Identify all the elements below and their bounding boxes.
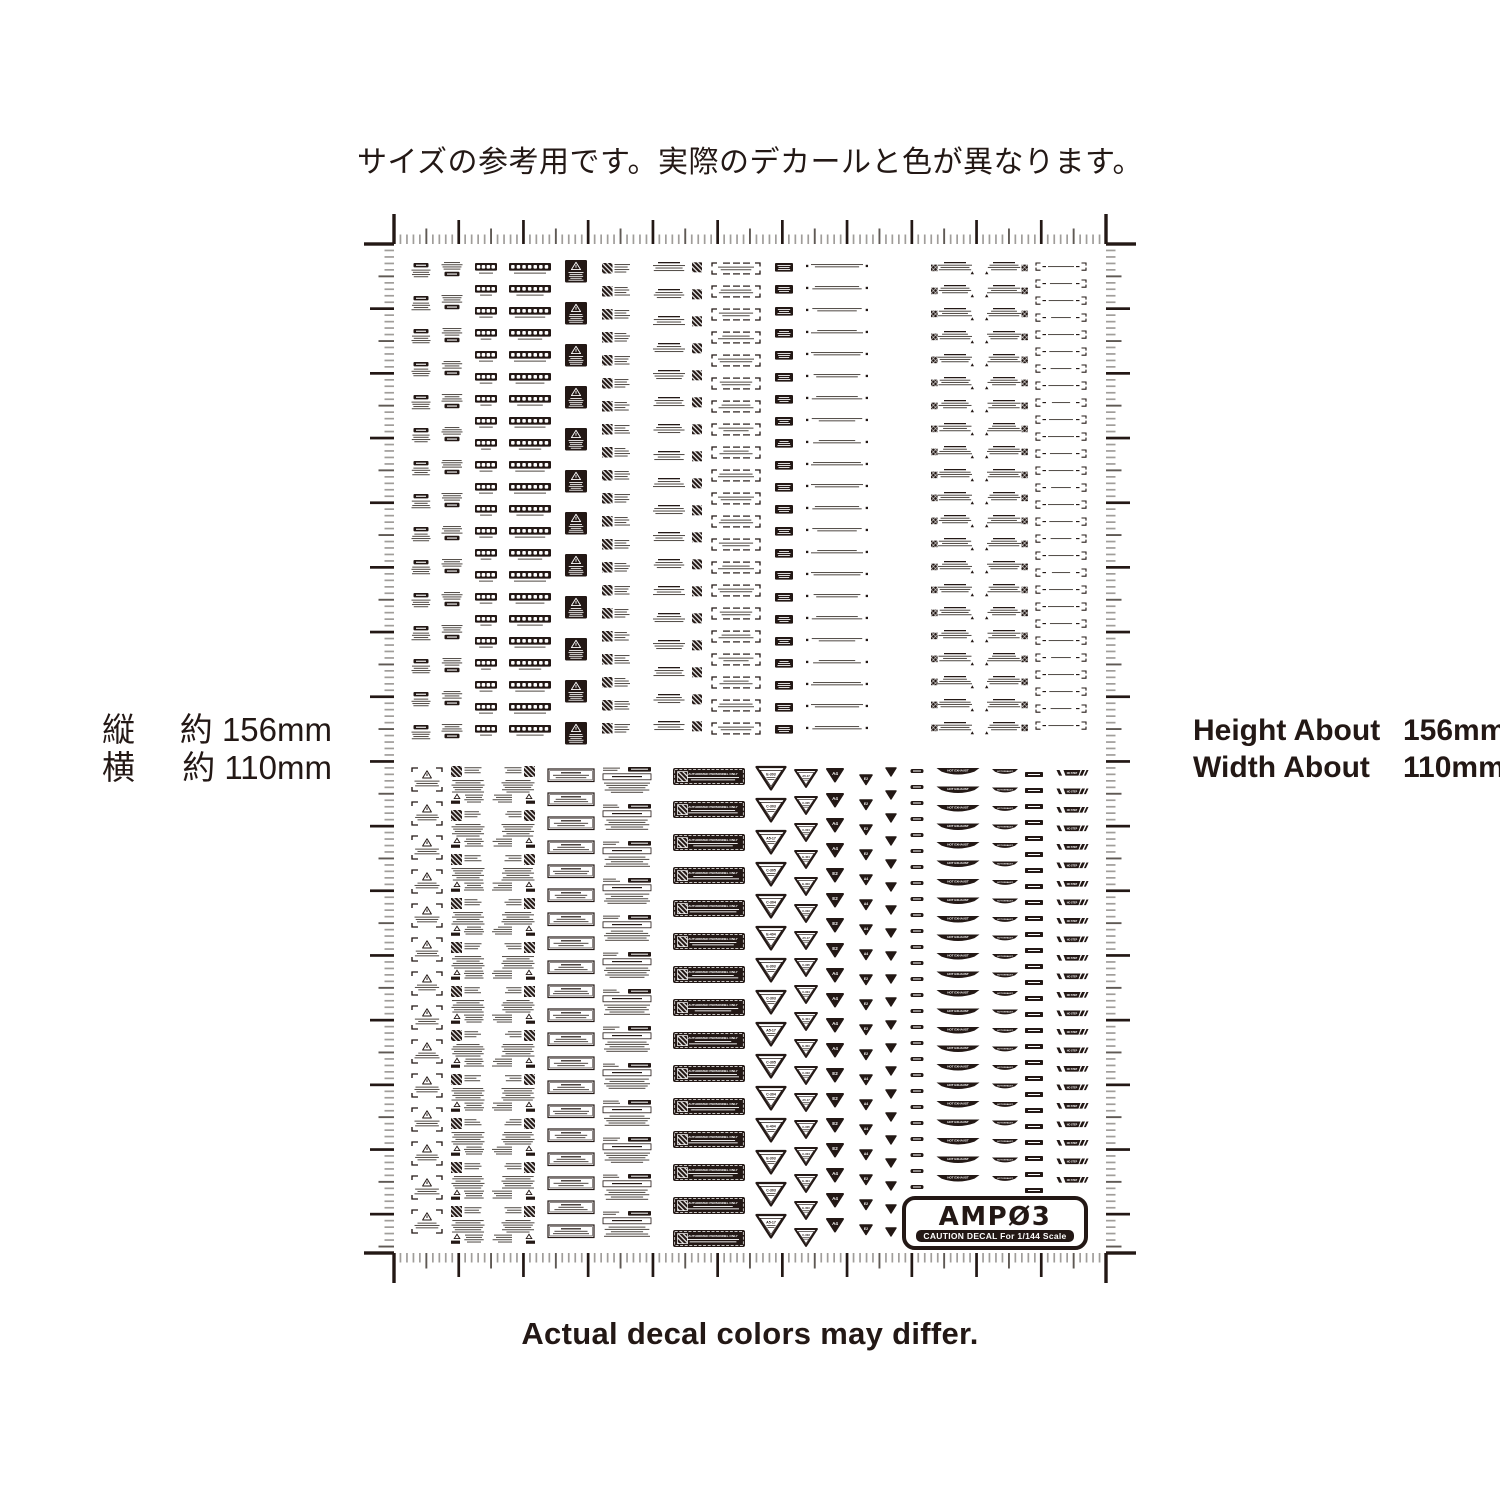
decal-armament-box (548, 889, 594, 902)
decal-armament-right (985, 400, 1028, 412)
decal-warn-square (565, 260, 587, 283)
decal-caution-tag (412, 263, 431, 277)
decal-hot-exhaust-s: HOT EXHAUST (992, 880, 1018, 885)
decal-pill-s (911, 993, 924, 997)
decal-label-rect (1025, 1124, 1043, 1129)
decal-dotted-line (806, 440, 868, 443)
decal-tri-label-l: C-303 (757, 1183, 786, 1206)
decal-text-stripe (653, 262, 702, 272)
decal-stripe-text (602, 516, 630, 527)
decal-chain-s (475, 615, 497, 626)
decal-chain-l (509, 373, 551, 384)
decal-armament-box (548, 913, 594, 926)
decal-text-pill (442, 559, 463, 573)
decal-text-pill (442, 460, 463, 474)
decal-text-stripe (653, 397, 702, 407)
decal-tri-plain (886, 814, 896, 822)
decal-pill-s (911, 1073, 924, 1077)
decal-bracket-box (712, 378, 760, 390)
decal-tri-plain (886, 1159, 896, 1167)
decal-stripe-text (602, 608, 630, 619)
svg-text:A4: A4 (864, 1127, 868, 1131)
decal-hot-exhaust-l: HOT EXHAUST (937, 972, 980, 979)
decal-caution-tag (412, 593, 431, 607)
svg-text:E2: E2 (864, 977, 868, 981)
decal-tri-label-s: A5-17 (795, 932, 817, 949)
decal-tri-label-s: C-304 (795, 986, 817, 1003)
decal-no-step: NO STEP (1057, 1066, 1089, 1072)
decal-hot-exhaust-s: HOT EXHAUST (992, 991, 1018, 996)
svg-text:E-303: E-303 (802, 1206, 810, 1210)
decal-tri-plain (886, 952, 896, 960)
svg-text:NO STEP: NO STEP (1067, 1049, 1078, 1052)
decal-armament-box (548, 1057, 594, 1070)
decal-armament-left (931, 561, 974, 573)
svg-text:A4: A4 (864, 1077, 868, 1081)
decal-tri-solid-s: A4 (860, 900, 872, 910)
svg-text:NO STEP: NO STEP (1067, 938, 1078, 941)
decal-pill-s (911, 865, 924, 869)
decal-chain-s (475, 307, 497, 318)
svg-text:NO STEP: NO STEP (1067, 827, 1078, 830)
decal-armament-box (548, 1033, 594, 1046)
decal-mini-black-box (775, 527, 793, 536)
decal-armament-box (548, 865, 594, 878)
decal-thin-bracket (1036, 586, 1086, 593)
decal-caution-tag (412, 461, 430, 475)
decal-dotted-line (806, 726, 868, 729)
decal-authorized-bar: AUTHORIZED PERSONNEL ONLY (673, 1098, 745, 1115)
svg-text:NO STEP: NO STEP (1067, 957, 1078, 960)
decal-no-step: NO STEP (1057, 1011, 1089, 1017)
decal-armament-left (931, 262, 974, 274)
decal-thin-bracket (1036, 450, 1086, 457)
svg-text:HOT EXHAUST: HOT EXHAUST (997, 936, 1013, 939)
decal-chain-s (475, 395, 497, 406)
svg-text:HOT EXHAUST: HOT EXHAUST (997, 1158, 1013, 1161)
en-width-label: Width About (1193, 749, 1403, 786)
decal-pill-s (911, 881, 924, 885)
decal-no-step: NO STEP (1057, 1029, 1089, 1035)
decal-armament-box (548, 1129, 594, 1142)
decal-chain-s (475, 593, 497, 604)
decal-dotted-line (806, 418, 868, 421)
decal-hot-exhaust-l: HOT EXHAUST (937, 842, 980, 849)
decal-tri-solid-l: A4 (827, 1219, 843, 1232)
decal-bracket-box (712, 355, 760, 367)
svg-text:HOT EXHAUST: HOT EXHAUST (947, 935, 969, 939)
decal-tri-bracket (412, 836, 442, 859)
decal-no-step: NO STEP (1057, 1103, 1089, 1109)
decal-thin-bracket (1036, 484, 1086, 491)
decal-dotted-line (806, 704, 868, 707)
decal-armament-right (985, 676, 1028, 688)
decal-armament-box (548, 1225, 594, 1238)
decal-chain-s (475, 263, 497, 274)
decal-label-rect (1025, 1028, 1043, 1033)
svg-text:A4: A4 (864, 902, 868, 906)
svg-text:E-303: E-303 (766, 773, 776, 777)
svg-text:HOT EXHAUST: HOT EXHAUST (947, 879, 969, 883)
decal-armament-box (548, 769, 594, 782)
decal-caution-tag (412, 527, 431, 541)
svg-text:HOT EXHAUST: HOT EXHAUST (947, 1157, 969, 1161)
svg-text:AUTHORIZED PERSONNEL ONLY: AUTHORIZED PERSONNEL ONLY (688, 1003, 738, 1007)
decal-mini-black-box (775, 505, 793, 514)
decal-authorized-bar: AUTHORIZED PERSONNEL ONLY (673, 1131, 745, 1148)
decal-bracket-box (712, 516, 760, 528)
decal-armament-right (985, 446, 1028, 458)
decal-pill-s (911, 961, 924, 965)
svg-text:NO STEP: NO STEP (1067, 1123, 1078, 1126)
decal-dotted-line (806, 528, 868, 531)
decal-tri-bracket (412, 1210, 442, 1233)
decal-hot-exhaust-l: HOT EXHAUST (937, 768, 980, 775)
svg-text:HOT EXHAUST: HOT EXHAUST (997, 1177, 1013, 1180)
decal-armament-box (548, 1081, 594, 1094)
svg-text:C-304: C-304 (802, 1152, 810, 1156)
decal-tri-bracket (412, 1108, 442, 1131)
decal-bracket-box (712, 700, 760, 712)
decal-tri-solid-s: A4 (860, 1150, 872, 1160)
decal-tri-plain (886, 929, 896, 937)
svg-text:NO STEP: NO STEP (1067, 883, 1078, 886)
decal-no-step: NO STEP (1057, 1085, 1089, 1091)
decal-pill-s (911, 897, 924, 901)
svg-text:A4: A4 (864, 1152, 868, 1156)
decal-caution-tag (412, 692, 431, 706)
decal-tri-plain (886, 1067, 896, 1075)
decal-bracket-box (712, 562, 760, 574)
decal-stripe-col-r (492, 1162, 535, 1200)
decal-authorized-bar: AUTHORIZED PERSONNEL ONLY (673, 1065, 745, 1082)
svg-text:HOT EXHAUST: HOT EXHAUST (947, 898, 969, 902)
svg-text:NO STEP: NO STEP (1067, 1086, 1078, 1089)
decal-hot-exhaust-s: HOT EXHAUST (992, 1010, 1018, 1015)
decal-armament-right (985, 607, 1028, 619)
decal-label-rect (1025, 1012, 1043, 1017)
svg-text:C-305: C-305 (802, 801, 810, 805)
decal-label-rect (1025, 1044, 1043, 1049)
decal-thin-bracket (1036, 722, 1086, 729)
jp-width-row: 横 約 110mm (102, 749, 332, 787)
svg-text:A4: A4 (864, 952, 868, 956)
decal-tri-bracket (412, 904, 442, 927)
decal-dotted-line (806, 682, 868, 685)
decal-dotted-line (806, 484, 868, 487)
decal-thin-bracket (1036, 348, 1086, 355)
decal-stripe-text (602, 424, 630, 435)
svg-text:NO STEP: NO STEP (1067, 1105, 1078, 1108)
svg-text:AUTHORIZED PERSONNEL ONLY: AUTHORIZED PERSONNEL ONLY (688, 838, 738, 842)
decal-tri-solid-s: E2 (860, 800, 872, 810)
decal-stripe-col-r (493, 766, 535, 804)
decal-service-text (603, 804, 651, 830)
decal-armament-left (931, 653, 974, 665)
decal-tri-solid-l: E2 (827, 1094, 843, 1107)
decal-armament-right (985, 469, 1028, 481)
decal-mini-black-box (775, 549, 793, 558)
svg-text:NO STEP: NO STEP (1067, 994, 1078, 997)
decal-tri-bracket (412, 1040, 442, 1063)
decal-no-step: NO STEP (1057, 807, 1089, 813)
decal-text-pill (442, 328, 462, 342)
svg-text:NO STEP: NO STEP (1067, 772, 1078, 775)
decal-armament-left (931, 377, 974, 389)
decal-stripe-text (602, 332, 630, 343)
decal-bracket-box (712, 424, 760, 436)
decal-tri-solid-s: E2 (860, 1050, 872, 1060)
decal-pill-s (911, 1057, 924, 1061)
decal-text-pill (442, 658, 462, 672)
svg-text:HOT EXHAUST: HOT EXHAUST (997, 918, 1013, 921)
svg-text:E-303: E-303 (766, 965, 776, 969)
decal-chain-l (509, 285, 551, 296)
decal-mini-black-box (775, 659, 793, 668)
decal-label-rect (1025, 788, 1043, 793)
decal-armament-left (931, 285, 974, 297)
decal-thin-bracket (1036, 654, 1086, 661)
decal-mini-black-box (775, 307, 793, 316)
decal-tri-plain (886, 1113, 896, 1121)
decal-text-stripe (653, 667, 702, 677)
decal-stripe-col (451, 1118, 485, 1156)
decal-tri-solid-s: E2 (860, 825, 872, 835)
decal-chain-l (509, 439, 551, 450)
decal-authorized-bar: AUTHORIZED PERSONNEL ONLY (673, 1164, 745, 1181)
decal-tri-plain (886, 1090, 896, 1098)
decal-tri-label-s: C-303 (795, 905, 817, 922)
decal-label-rect (1025, 1076, 1043, 1081)
decal-pill-s (911, 945, 924, 949)
decal-pill-s (911, 1121, 924, 1125)
decal-armament-right (985, 653, 1028, 665)
decal-label-rect (1025, 804, 1043, 809)
decal-stripe-col (451, 986, 485, 1024)
decal-stripe-text (602, 378, 630, 389)
decal-chain-l (509, 351, 551, 362)
decal-tri-solid-s: E2 (860, 1025, 872, 1035)
decal-mini-black-box (775, 637, 793, 646)
decal-tri-solid-s: A4 (860, 1100, 872, 1110)
svg-text:E-404: E-404 (802, 1017, 810, 1021)
svg-text:E2: E2 (864, 1027, 868, 1031)
jp-width-value: 約 110mm (182, 749, 332, 787)
decal-stripe-col (451, 1206, 485, 1244)
decal-stripe-col-r (492, 898, 535, 936)
svg-text:E2: E2 (864, 1002, 868, 1006)
decal-text-pill (442, 691, 462, 705)
decal-caution-tag (412, 560, 431, 574)
decal-tri-label-s: C-305 (795, 797, 817, 814)
decal-tri-label-l: C-305 (757, 1055, 786, 1078)
decal-caution-tag (412, 329, 431, 343)
decal-hot-exhaust-l: HOT EXHAUST (937, 1157, 980, 1164)
decal-hot-exhaust-s: HOT EXHAUST (992, 788, 1018, 793)
jp-height-label: 縦 (102, 711, 135, 749)
decal-stripe-text (602, 631, 630, 642)
decal-tri-label-s: C-305 (795, 1121, 817, 1138)
decal-label-rect (1025, 1140, 1043, 1145)
decal-stripe-col-r (492, 942, 535, 980)
decal-thin-bracket (1036, 297, 1086, 304)
decal-hot-exhaust-s: HOT EXHAUST (992, 1065, 1018, 1070)
decal-stripe-text (602, 654, 630, 665)
decal-tri-label-l: C-303 (757, 799, 786, 822)
decal-text-pill (442, 526, 463, 540)
decal-service-text (603, 1174, 651, 1200)
decal-tri-solid-l: A4 (827, 969, 843, 982)
decal-thin-bracket (1036, 382, 1086, 389)
decal-tri-label-s: C-303 (795, 1067, 817, 1084)
svg-text:E-303: E-303 (802, 882, 810, 886)
svg-text:C-303: C-303 (802, 1233, 810, 1237)
decal-pill-s (911, 1025, 924, 1029)
decal-tri-label-l: C-305 (757, 863, 786, 886)
decal-armament-box (548, 961, 594, 974)
decal-bracket-box (712, 631, 760, 643)
svg-text:NO STEP: NO STEP (1067, 920, 1078, 923)
decal-stripe-text (602, 401, 630, 412)
decal-dotted-line (806, 506, 868, 509)
decal-warn-square (565, 428, 587, 451)
decal-thin-bracket (1036, 433, 1086, 440)
svg-text:E2: E2 (864, 1177, 868, 1181)
decal-armament-left (931, 354, 974, 366)
decal-label-rect (1025, 852, 1043, 857)
decal-service-text (603, 1211, 651, 1237)
decal-tri-bracket (412, 870, 442, 893)
svg-text:A4: A4 (864, 1102, 868, 1106)
decal-armament-left (931, 400, 974, 412)
decal-authorized-bar: AUTHORIZED PERSONNEL ONLY (673, 999, 745, 1016)
decal-armament-box (548, 1201, 594, 1214)
decal-stripe-col-r (493, 810, 535, 848)
decal-tri-solid-s: E2 (860, 775, 872, 785)
decal-authorized-bar: AUTHORIZED PERSONNEL ONLY (673, 834, 745, 851)
svg-text:E2: E2 (832, 896, 838, 901)
decal-caution-tag (412, 626, 431, 640)
decal-bracket-box (712, 585, 760, 597)
decal-tri-label-s: C-304 (795, 1148, 817, 1165)
svg-text:HOT EXHAUST: HOT EXHAUST (947, 1175, 969, 1179)
decal-mini-black-box (775, 461, 793, 470)
decal-tri-label-l: A5-17 (757, 1215, 786, 1238)
svg-text:C-305: C-305 (766, 869, 776, 873)
decal-armament-box (548, 793, 594, 806)
bottom-caption: Actual decal colors may differ. (0, 1316, 1500, 1352)
decal-hot-exhaust-l: HOT EXHAUST (937, 1138, 980, 1145)
decal-tri-solid-l: E2 (827, 1119, 843, 1132)
svg-text:A4: A4 (832, 1046, 838, 1051)
decal-no-step: NO STEP (1057, 789, 1089, 795)
svg-text:NO STEP: NO STEP (1067, 1012, 1078, 1015)
decal-tri-label-l: A5-17 (757, 831, 786, 854)
decal-label-rect (1025, 1108, 1043, 1113)
svg-text:HOT EXHAUST: HOT EXHAUST (947, 824, 969, 828)
decal-tri-label-l: E-404 (757, 1119, 786, 1142)
decal-service-text (603, 952, 651, 978)
decal-no-step: NO STEP (1057, 918, 1089, 924)
decal-stripe-col (451, 1162, 485, 1200)
svg-text:C-304: C-304 (766, 901, 776, 905)
decal-tri-label-s: A5-17 (795, 1094, 817, 1111)
decal-text-stripe (653, 451, 702, 461)
jp-height-value: 約 156mm (180, 711, 332, 749)
decal-hot-exhaust-l: HOT EXHAUST (937, 805, 980, 812)
decal-bracket-box (712, 309, 760, 321)
svg-text:C-305: C-305 (802, 963, 810, 967)
svg-text:HOT EXHAUST: HOT EXHAUST (997, 992, 1013, 995)
decal-dotted-line (806, 616, 868, 619)
svg-text:HOT EXHAUST: HOT EXHAUST (947, 953, 969, 957)
svg-text:A4: A4 (864, 927, 868, 931)
decal-label-rect (1025, 868, 1043, 873)
svg-text:HOT EXHAUST: HOT EXHAUST (947, 1138, 969, 1142)
svg-text:A4: A4 (832, 796, 838, 801)
decal-label-rect (1025, 884, 1043, 889)
decal-mini-black-box (775, 373, 793, 382)
svg-text:AUTHORIZED PERSONNEL ONLY: AUTHORIZED PERSONNEL ONLY (688, 1069, 738, 1073)
decal-chain-s (475, 549, 497, 560)
svg-text:NO STEP: NO STEP (1067, 846, 1078, 849)
decal-stripe-text (602, 447, 630, 458)
decal-hot-exhaust-s: HOT EXHAUST (992, 1084, 1018, 1089)
decal-mini-black-box (775, 329, 793, 338)
decal-chain-s (475, 527, 497, 538)
size-label-jp: 縦 約 156mm 横 約 110mm (102, 711, 332, 787)
svg-text:NO STEP: NO STEP (1067, 1179, 1078, 1182)
decal-chain-l (509, 615, 551, 626)
svg-text:A5-17: A5-17 (766, 1029, 776, 1033)
decal-stripe-col (451, 898, 485, 936)
decal-bracket-box (712, 654, 760, 666)
decal-stripe-text (602, 263, 630, 274)
decal-armament-right (985, 285, 1028, 297)
decal-warn-square (565, 554, 587, 577)
decal-chain-s (475, 285, 497, 296)
svg-text:E2: E2 (832, 921, 838, 926)
decal-caution-tag (412, 659, 431, 673)
decal-chain-s (475, 417, 497, 428)
decal-thin-bracket (1036, 365, 1086, 372)
decal-authorized-bar: AUTHORIZED PERSONNEL ONLY (673, 933, 745, 950)
decal-label-rect (1025, 1172, 1043, 1177)
decal-caution-tag (412, 395, 431, 409)
decal-bracket-box (712, 723, 760, 735)
decal-armament-right (985, 492, 1028, 504)
decal-armament-box (548, 817, 594, 830)
svg-text:A5-17: A5-17 (766, 837, 776, 841)
svg-text:E2: E2 (832, 871, 838, 876)
svg-text:NO STEP: NO STEP (1067, 1142, 1078, 1145)
svg-text:AUTHORIZED PERSONNEL ONLY: AUTHORIZED PERSONNEL ONLY (688, 871, 738, 875)
decal-tri-bracket (412, 802, 442, 825)
svg-text:AUTHORIZED PERSONNEL ONLY: AUTHORIZED PERSONNEL ONLY (688, 1135, 738, 1139)
decal-hot-exhaust-s: HOT EXHAUST (992, 899, 1018, 904)
svg-text:E-404: E-404 (802, 1179, 810, 1183)
decal-tri-solid-l: A4 (827, 1019, 843, 1032)
decal-authorized-bar: AUTHORIZED PERSONNEL ONLY (673, 1032, 745, 1049)
svg-text:HOT EXHAUST: HOT EXHAUST (997, 844, 1013, 847)
decal-stripe-text (602, 700, 630, 711)
jp-height-row: 縦 約 156mm (102, 711, 332, 749)
decal-armament-left (931, 630, 974, 642)
decal-dotted-line (806, 330, 868, 333)
svg-text:C-303: C-303 (802, 1071, 810, 1075)
decal-tri-label-l: E-303 (757, 1151, 786, 1174)
decal-chain-l (509, 549, 551, 560)
